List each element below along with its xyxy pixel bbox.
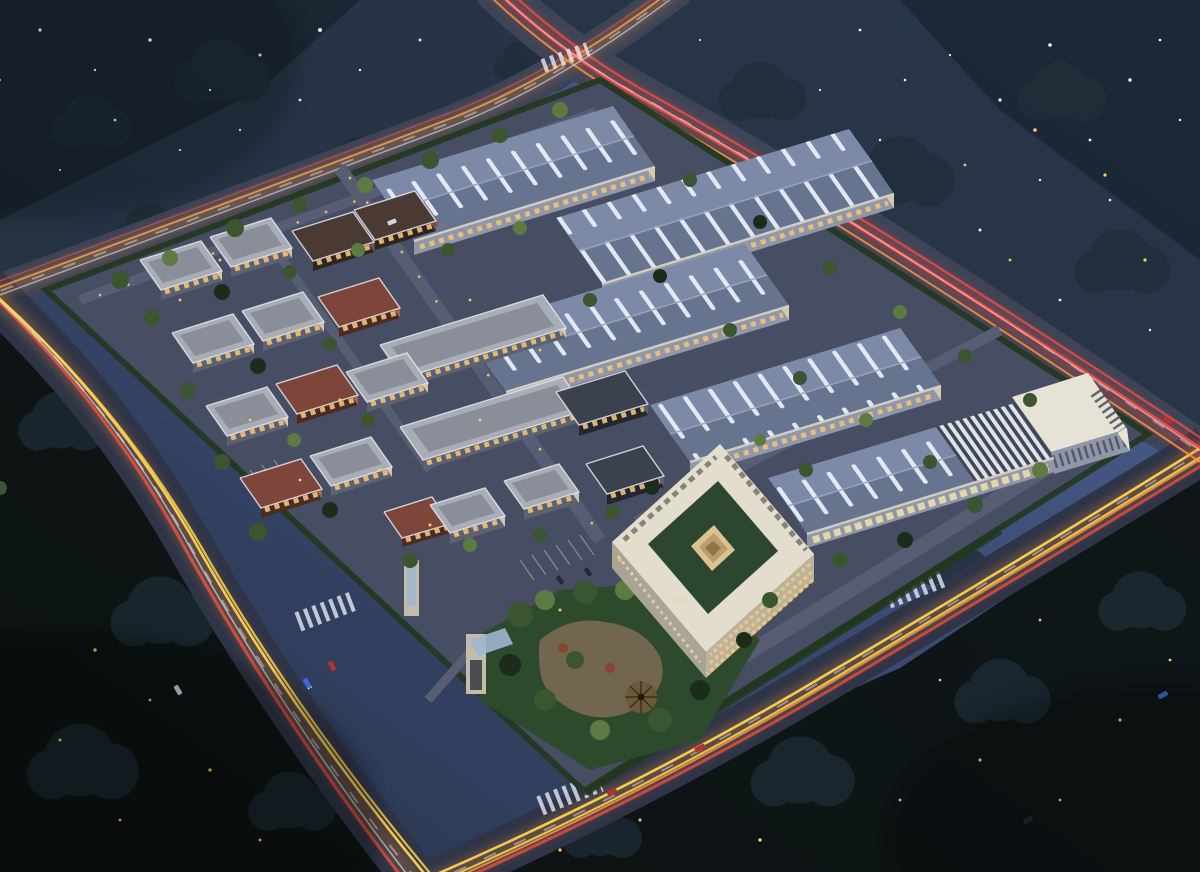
aerial-rendering-stage: [0, 0, 1200, 872]
round-gazebo: [625, 681, 657, 713]
industrial-park-aerial-rendering: [0, 0, 1200, 872]
